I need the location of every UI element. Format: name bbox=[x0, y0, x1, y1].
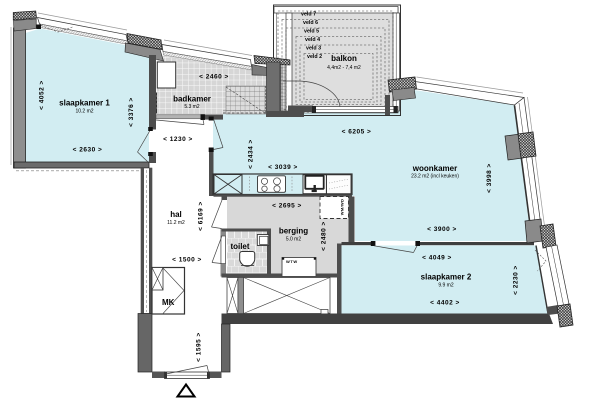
svg-text:veld 7: veld 7 bbox=[301, 12, 316, 18]
svg-text:< 1500 >: < 1500 > bbox=[172, 257, 202, 264]
svg-text:10.2 m2: 10.2 m2 bbox=[75, 109, 93, 115]
svg-text:veld 2: veld 2 bbox=[307, 54, 322, 60]
svg-text:< 2460 >: < 2460 > bbox=[199, 74, 229, 81]
svg-text:< 6169 >: < 6169 > bbox=[198, 201, 205, 231]
svg-text:slaapkamer 2: slaapkamer 2 bbox=[421, 273, 472, 282]
svg-text:< 4402 >: < 4402 > bbox=[430, 300, 460, 307]
svg-text:< 2230 >: < 2230 > bbox=[513, 265, 520, 295]
svg-text:5.3 m2: 5.3 m2 bbox=[184, 104, 200, 110]
svg-text:< 2695 >: < 2695 > bbox=[272, 203, 302, 210]
svg-text:veld 4: veld 4 bbox=[305, 37, 320, 43]
svg-text:< 4049 >: < 4049 > bbox=[422, 255, 452, 262]
svg-text:slaapkamer 1: slaapkamer 1 bbox=[59, 99, 110, 108]
svg-text:< 3039 >: < 3039 > bbox=[268, 164, 298, 171]
svg-text:veld 3: veld 3 bbox=[306, 46, 321, 52]
svg-text:< 3376 >: < 3376 > bbox=[128, 97, 135, 127]
svg-text:5.0 m2: 5.0 m2 bbox=[286, 237, 302, 243]
svg-text:toilet: toilet bbox=[230, 242, 249, 251]
svg-text:< 6205 >: < 6205 > bbox=[342, 129, 372, 136]
svg-text:< 3900 >: < 3900 > bbox=[427, 226, 457, 233]
svg-text:< 3998 >: < 3998 > bbox=[486, 163, 493, 193]
svg-text:woonkamer: woonkamer bbox=[412, 164, 457, 173]
svg-text:< 2630 >: < 2630 > bbox=[73, 147, 103, 154]
svg-text:veld 5: veld 5 bbox=[304, 29, 319, 35]
svg-text:4,4m2 - 7,4 m2: 4,4m2 - 7,4 m2 bbox=[327, 65, 361, 71]
svg-text:< 1230 >: < 1230 > bbox=[163, 136, 193, 143]
svg-text:< 2480 >: < 2480 > bbox=[321, 221, 328, 251]
svg-text:23.2 m2 (incl keuken): 23.2 m2 (incl keuken) bbox=[411, 174, 459, 180]
svg-text:badkamer: badkamer bbox=[173, 95, 211, 104]
svg-text:veld 6: veld 6 bbox=[303, 20, 318, 26]
svg-text:berging: berging bbox=[279, 227, 308, 236]
svg-text:hal: hal bbox=[170, 210, 182, 219]
svg-text:WM/WD: WM/WD bbox=[340, 199, 345, 215]
svg-text:< 1595 >: < 1595 > bbox=[196, 332, 203, 362]
svg-text:11.2 m2: 11.2 m2 bbox=[167, 220, 185, 226]
svg-text:9.9 m2: 9.9 m2 bbox=[438, 283, 454, 289]
svg-text:< 2434 >: < 2434 > bbox=[248, 139, 255, 169]
svg-text:MK: MK bbox=[162, 298, 175, 307]
svg-text:WTW: WTW bbox=[286, 259, 298, 264]
svg-text:< 4052 >: < 4052 > bbox=[39, 80, 46, 110]
svg-text:balkon: balkon bbox=[331, 54, 357, 63]
